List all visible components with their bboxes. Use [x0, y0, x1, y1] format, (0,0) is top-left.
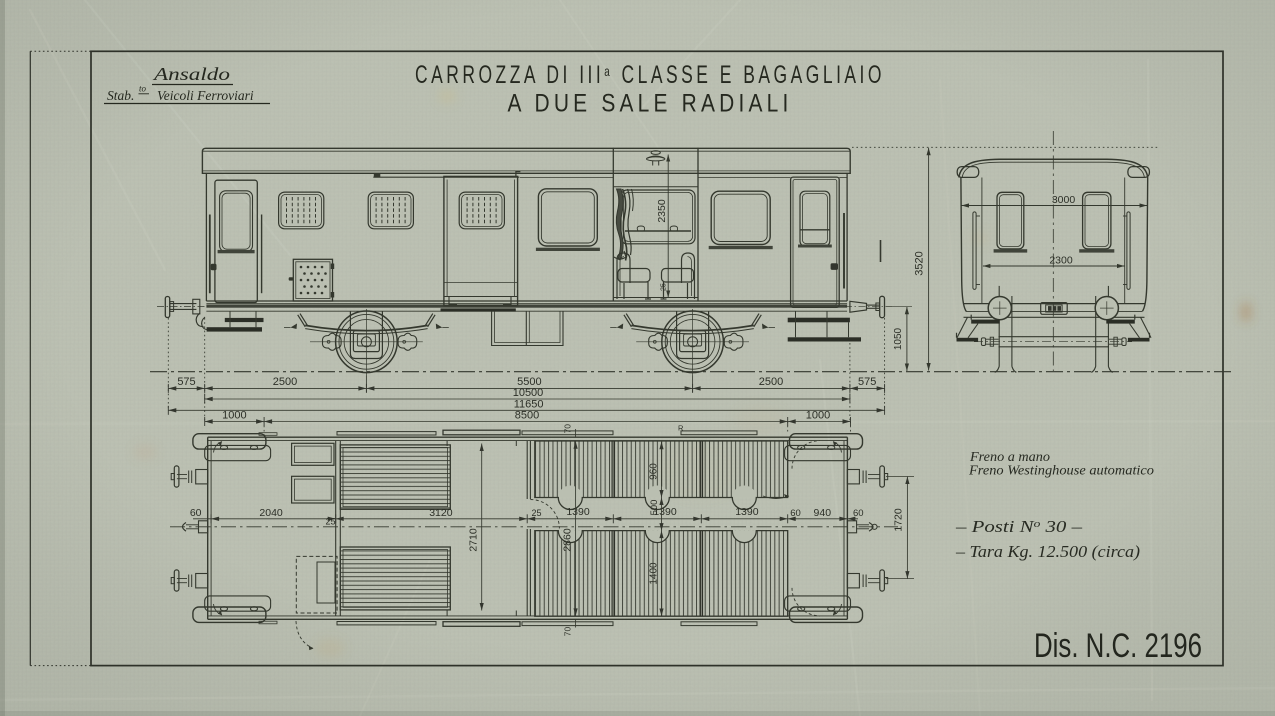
svg-text:Freno Westinghouse automatico: Freno Westinghouse automatico — [968, 463, 1154, 478]
svg-text:60: 60 — [190, 507, 202, 519]
svg-text:2040: 2040 — [259, 507, 283, 519]
svg-text:A DUE SALE RADIALI: A DUE SALE RADIALI — [508, 90, 793, 118]
svg-text:– Tara Kg. 12.500 (circa): – Tara Kg. 12.500 (circa) — [955, 542, 1140, 561]
svg-text:11650: 11650 — [514, 398, 544, 410]
svg-text:940: 940 — [814, 507, 832, 519]
svg-text:Stab.: Stab. — [107, 88, 134, 103]
svg-text:2860: 2860 — [561, 528, 573, 552]
svg-text:CARROZZA DI IIIa CLASSE E: CARROZZA DI IIIa CLASSE E BAGAGLIAIO — [415, 61, 885, 89]
svg-text:2500: 2500 — [759, 376, 783, 388]
svg-text:10500: 10500 — [513, 387, 544, 399]
svg-text:2500: 2500 — [273, 376, 297, 388]
svg-text:– Posti No 30 –: – Posti No 30 – — [955, 517, 1083, 536]
svg-text:1400: 1400 — [649, 562, 660, 585]
svg-text:1000: 1000 — [222, 410, 246, 422]
svg-text:25: 25 — [661, 283, 668, 291]
svg-text:70: 70 — [563, 627, 573, 637]
svg-text:960: 960 — [649, 463, 660, 480]
svg-text:1720: 1720 — [893, 508, 905, 532]
svg-text:Dis. N.C. 2196: Dis. N.C. 2196 — [1034, 627, 1202, 665]
svg-text:25: 25 — [531, 508, 541, 518]
svg-text:2710: 2710 — [468, 528, 480, 552]
svg-text:3000: 3000 — [1052, 194, 1076, 206]
svg-text:60: 60 — [853, 508, 864, 519]
svg-text:1390: 1390 — [735, 506, 759, 518]
svg-text:Ansaldo: Ansaldo — [153, 64, 231, 84]
svg-text:60: 60 — [790, 508, 801, 519]
svg-text:to: to — [139, 84, 147, 94]
svg-text:70: 70 — [563, 424, 573, 434]
svg-text:Veicoli Ferroviari: Veicoli Ferroviari — [157, 88, 254, 103]
svg-text:25: 25 — [325, 517, 335, 527]
svg-text:2350: 2350 — [656, 199, 668, 223]
svg-text:3120: 3120 — [429, 507, 453, 519]
svg-text:1050: 1050 — [893, 327, 904, 350]
svg-text:R: R — [678, 424, 684, 433]
svg-text:500: 500 — [649, 500, 660, 516]
svg-text:3520: 3520 — [914, 251, 926, 275]
svg-text:575: 575 — [858, 376, 876, 388]
svg-text:1000: 1000 — [806, 410, 830, 422]
svg-text:1390: 1390 — [566, 506, 590, 518]
svg-text:575: 575 — [177, 376, 195, 388]
svg-text:2300: 2300 — [1049, 255, 1073, 267]
svg-text:8500: 8500 — [515, 410, 539, 422]
svg-text:5500: 5500 — [517, 376, 541, 388]
